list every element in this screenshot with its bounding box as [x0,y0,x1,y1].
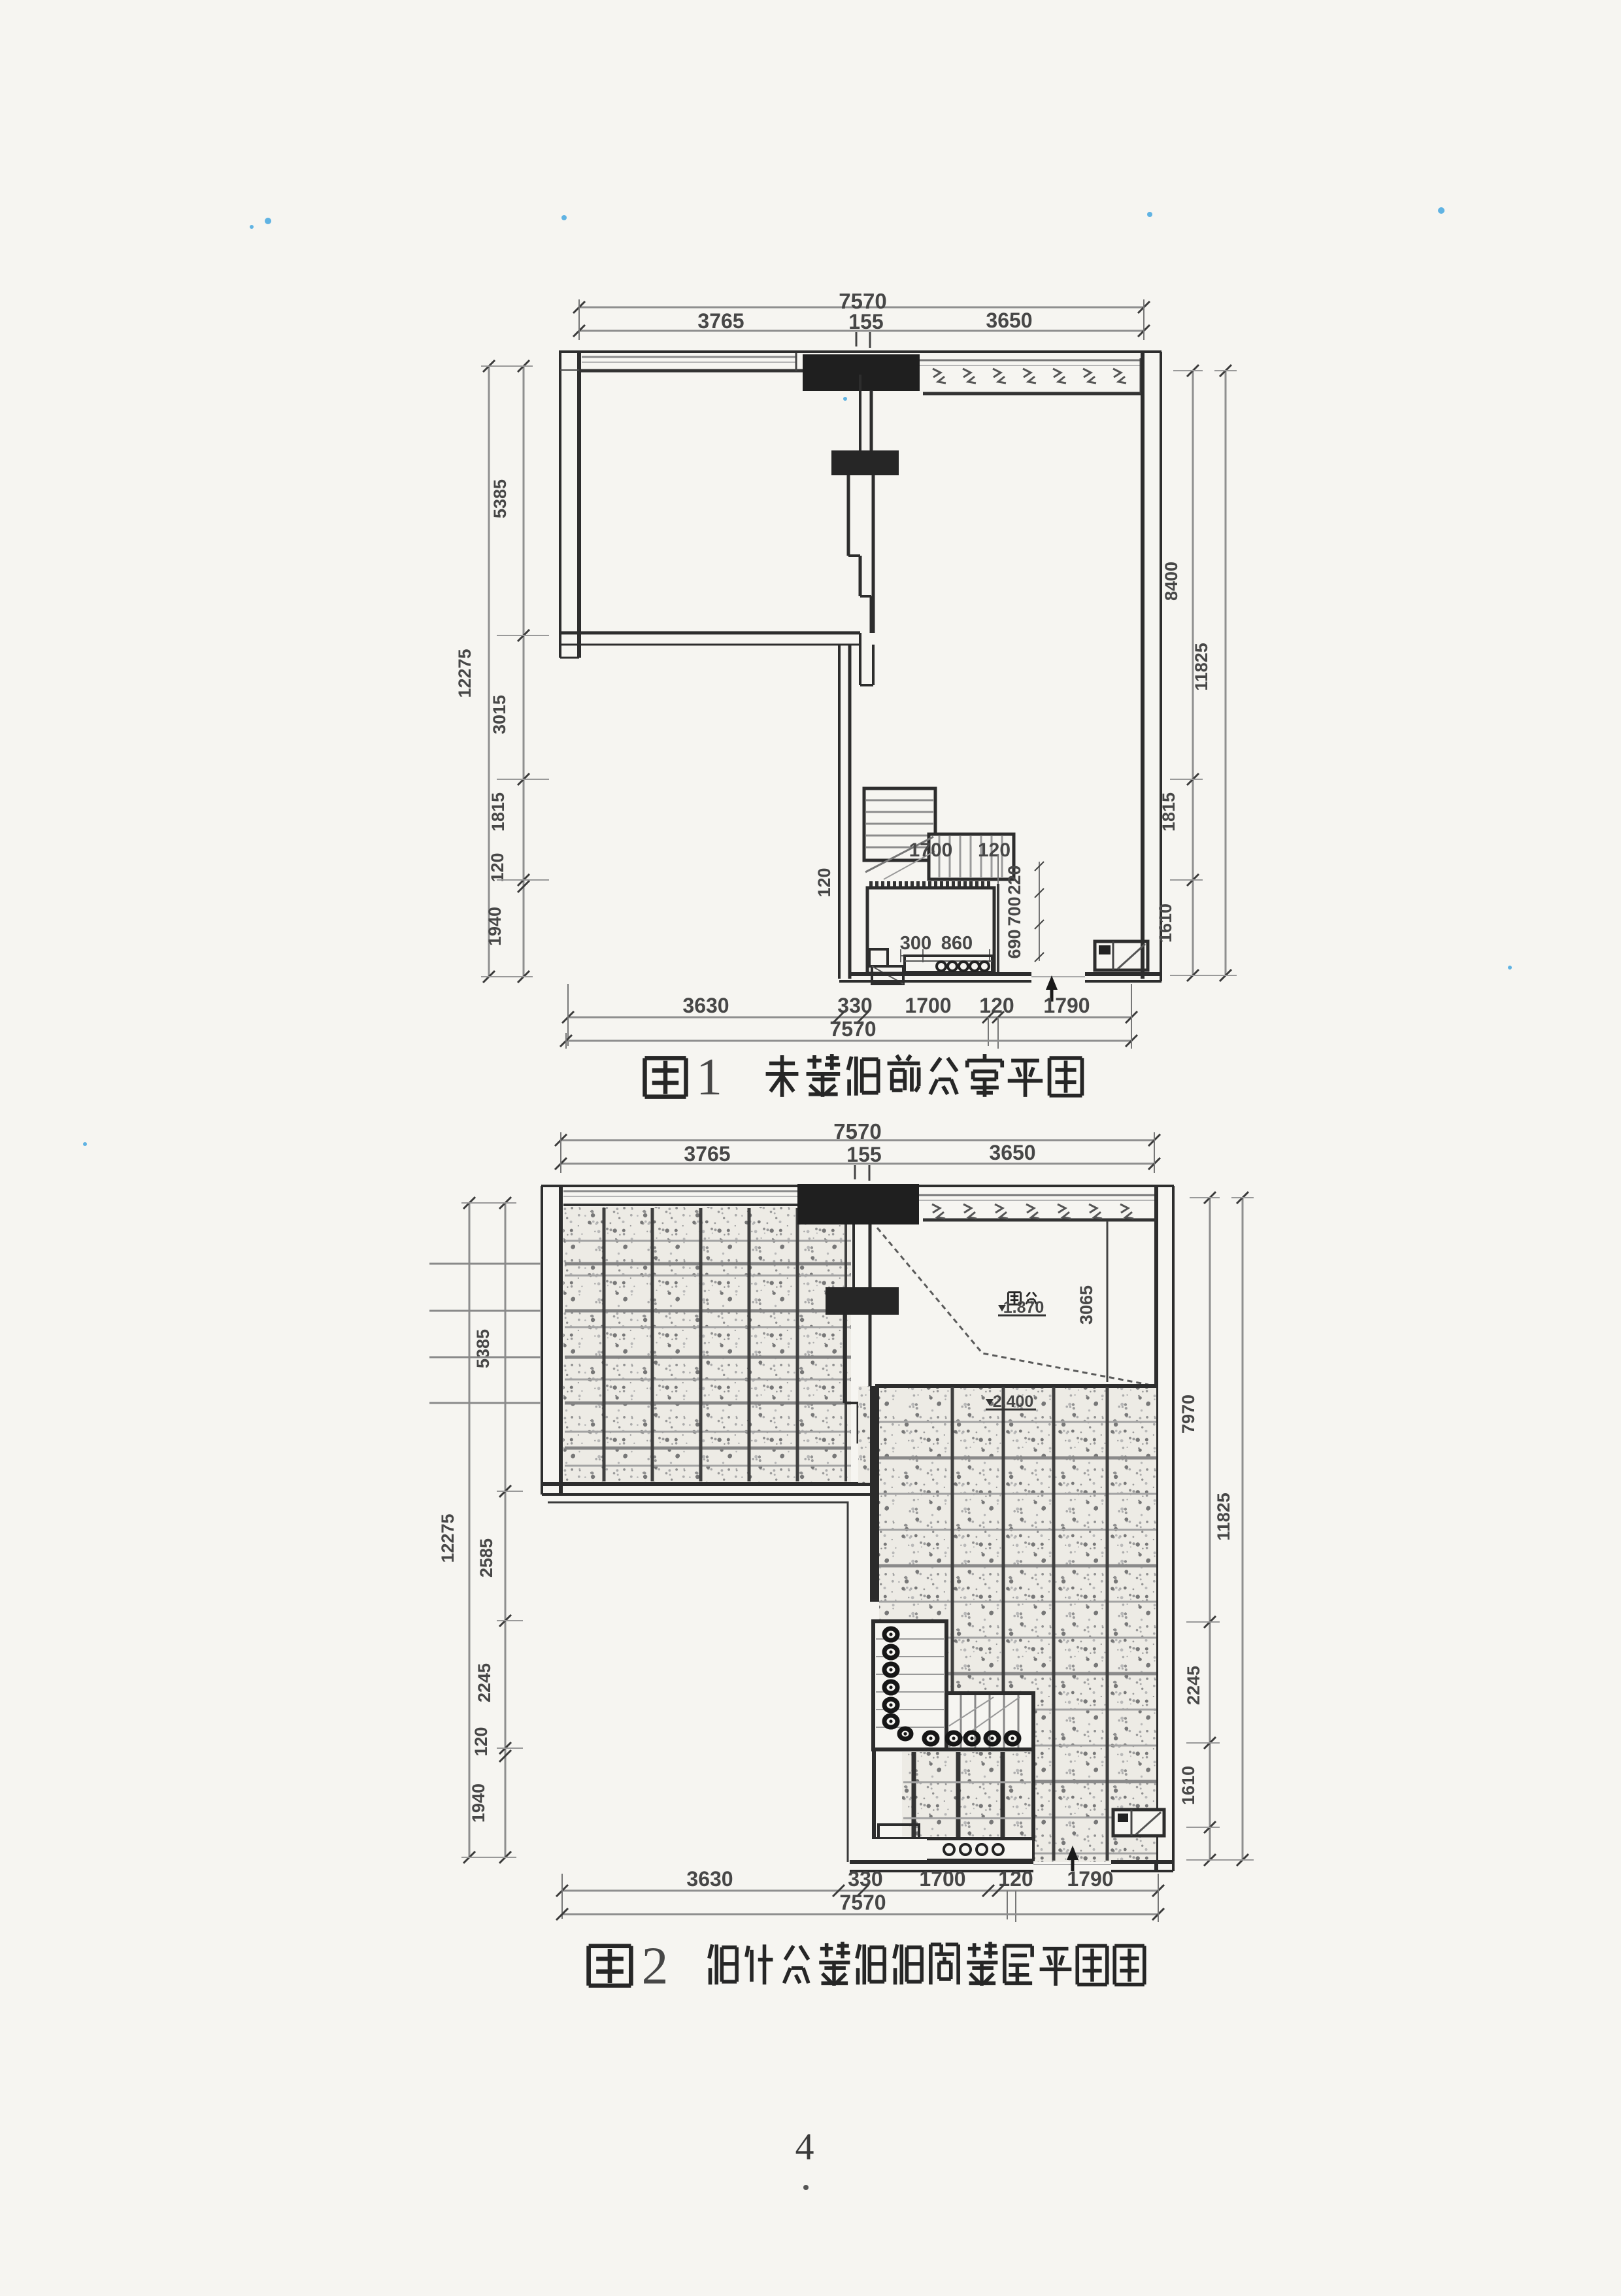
svg-text:120: 120 [488,853,507,882]
svg-text:4: 4 [795,2125,814,2168]
svg-text:120: 120 [979,994,1014,1017]
svg-text:5385: 5385 [490,479,510,518]
svg-text:2245: 2245 [1184,1666,1203,1705]
svg-text:1700: 1700 [905,994,951,1017]
svg-text:1940: 1940 [469,1783,488,1823]
svg-text:8400: 8400 [1161,562,1181,601]
svg-text:3630: 3630 [686,1867,733,1891]
svg-text:1815: 1815 [488,792,508,832]
svg-text:11825: 11825 [1192,643,1211,691]
svg-text:690: 690 [1005,929,1024,958]
svg-text:2: 2 [642,1936,669,1995]
svg-text:1700: 1700 [909,839,953,861]
svg-text:12275: 12275 [438,1513,458,1562]
svg-text:155: 155 [846,1143,881,1166]
svg-text:1.870: 1.870 [1003,1298,1044,1317]
svg-text:3650: 3650 [989,1141,1035,1164]
svg-text:1700: 1700 [919,1867,965,1891]
svg-text:1940: 1940 [485,907,505,946]
svg-text:120: 120 [471,1727,491,1756]
svg-text:3650: 3650 [986,309,1032,332]
svg-text:7570: 7570 [829,1017,876,1041]
svg-text:12275: 12275 [455,649,475,698]
svg-text:220: 220 [1005,865,1024,894]
svg-text:3765: 3765 [697,309,744,333]
svg-text:2585: 2585 [476,1538,496,1578]
svg-text:155: 155 [848,310,883,333]
svg-text:2245: 2245 [475,1663,494,1702]
svg-text:1610: 1610 [1178,1766,1198,1805]
svg-text:11825: 11825 [1214,1493,1233,1541]
svg-text:1790: 1790 [1043,994,1090,1017]
svg-text:7970: 7970 [1178,1394,1198,1434]
svg-text:3015: 3015 [490,695,509,734]
svg-text:3630: 3630 [682,994,729,1017]
svg-text:7570: 7570 [833,1119,881,1143]
svg-text:700: 700 [1005,896,1024,926]
svg-text:120: 120 [998,1867,1033,1891]
svg-text:120: 120 [814,868,834,897]
svg-text:1790: 1790 [1067,1867,1113,1891]
svg-text:300: 300 [900,933,931,954]
svg-text:7570: 7570 [839,1891,886,1914]
svg-text:3065: 3065 [1077,1285,1096,1325]
svg-text:1610: 1610 [1156,903,1175,943]
svg-text:860: 860 [941,933,973,954]
svg-text:1815: 1815 [1159,792,1178,832]
svg-text:3765: 3765 [684,1142,730,1166]
svg-text:120: 120 [978,839,1011,861]
svg-text:1: 1 [696,1049,722,1106]
svg-text:5385: 5385 [473,1329,493,1368]
svg-text:2.400: 2.400 [993,1393,1034,1411]
